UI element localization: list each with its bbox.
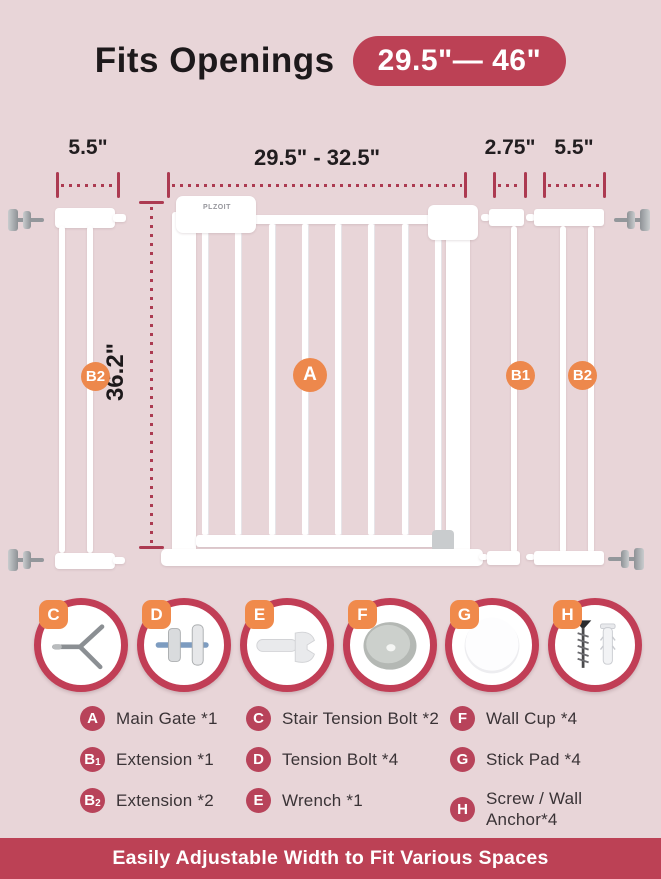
legend-label: Tension Bolt *4 [282, 749, 398, 770]
part-badge-h: H [553, 600, 582, 629]
height-dim-line [150, 207, 153, 545]
marker-left-extension-b2: B2 [81, 362, 110, 391]
legend-badge-g: G [450, 747, 475, 772]
gate-top-latch [428, 205, 478, 240]
dim-line-left-extension [56, 172, 120, 198]
legend-item-wall-cup: F Wall Cup *4 [450, 706, 606, 731]
gate-handle: PLZOIT [176, 196, 256, 233]
legend-label: Wall Cup *4 [486, 708, 577, 729]
part-circle-h: H [548, 598, 642, 692]
part-badge-f: F [348, 600, 377, 629]
tension-bolt-icon [6, 548, 46, 572]
legend-label: Stick Pad *4 [486, 749, 581, 770]
legend-item-stair-tension-bolt: C Stair Tension Bolt *2 [246, 706, 439, 731]
header: Fits Openings 29.5"— 46" [0, 36, 661, 86]
part-badge-c: C [39, 600, 68, 629]
legend-label: Main Gate *1 [116, 708, 218, 729]
legend-label: Screw / Wall Anchor*4 [486, 788, 606, 831]
dim-line-right-extension [543, 172, 606, 198]
footer-text: Easily Adjustable Width to Fit Various S… [112, 847, 548, 870]
opening-range-badge: 29.5"— 46" [353, 36, 567, 86]
legend-badge-h: H [450, 797, 475, 822]
product-infographic: Fits Openings 29.5"— 46" 5.5" 29.5" - 32… [0, 0, 661, 879]
part-circle-g: G [445, 598, 539, 692]
legend-column-1: A Main Gate *1 B1 Extension *1 B2 Extens… [80, 706, 218, 829]
height-dim-top-tick [139, 201, 164, 204]
legend-item-extension-b2: B2 Extension *2 [80, 788, 218, 813]
tension-bolt-icon [6, 208, 46, 232]
part-circle-d: D [137, 598, 231, 692]
dim-line-gate [167, 172, 467, 198]
dim-left-extension: 5.5" [47, 136, 129, 160]
tension-bolt-icon [612, 208, 652, 232]
legend-badge-f: F [450, 706, 475, 731]
legend-badge-c: C [246, 706, 271, 731]
marker-extension-b1: B1 [506, 361, 535, 390]
legend-column-3: F Wall Cup *4 G Stick Pad *4 H Screw / W… [450, 706, 606, 847]
legend-badge-e: E [246, 788, 271, 813]
brand-logo: PLZOIT [203, 204, 231, 211]
part-circle-f: F [343, 598, 437, 692]
dim-line-b1 [493, 172, 527, 198]
part-badge-g: G [450, 600, 479, 629]
legend-label: Extension *1 [116, 749, 214, 770]
part-badge-d: D [142, 600, 171, 629]
legend-badge-d: D [246, 747, 271, 772]
marker-extension-b2: B2 [568, 361, 597, 390]
legend-column-2: C Stair Tension Bolt *2 D Tension Bolt *… [246, 706, 439, 829]
footer-banner: Easily Adjustable Width to Fit Various S… [0, 838, 661, 879]
legend-label: Extension *2 [116, 790, 214, 811]
legend-label: Wrench *1 [282, 790, 363, 811]
page-title: Fits Openings [95, 41, 335, 81]
legend-item-screw-wall-anchor: H Screw / Wall Anchor*4 [450, 788, 606, 831]
legend-badge-a: A [80, 706, 105, 731]
legend-label: Stair Tension Bolt *2 [282, 708, 439, 729]
marker-main-gate: A [293, 358, 327, 392]
legend-item-tension-bolt: D Tension Bolt *4 [246, 747, 439, 772]
height-dim-bottom-tick [139, 546, 164, 549]
dim-b1-extension: 2.75" [478, 136, 542, 160]
legend-item-extension-b1: B1 Extension *1 [80, 747, 218, 772]
legend-badge-b1: B1 [80, 747, 105, 772]
legend-item-main-gate: A Main Gate *1 [80, 706, 218, 731]
dim-right-extension: 5.5" [542, 136, 606, 160]
part-circle-c: C [34, 598, 128, 692]
legend-item-stick-pad: G Stick Pad *4 [450, 747, 606, 772]
legend-badge-b2: B2 [80, 788, 105, 813]
tension-bolt-icon [606, 547, 646, 571]
legend-item-wrench: E Wrench *1 [246, 788, 439, 813]
part-badge-e: E [245, 600, 274, 629]
part-circle-e: E [240, 598, 334, 692]
dim-gate-range: 29.5" - 32.5" [217, 145, 417, 171]
